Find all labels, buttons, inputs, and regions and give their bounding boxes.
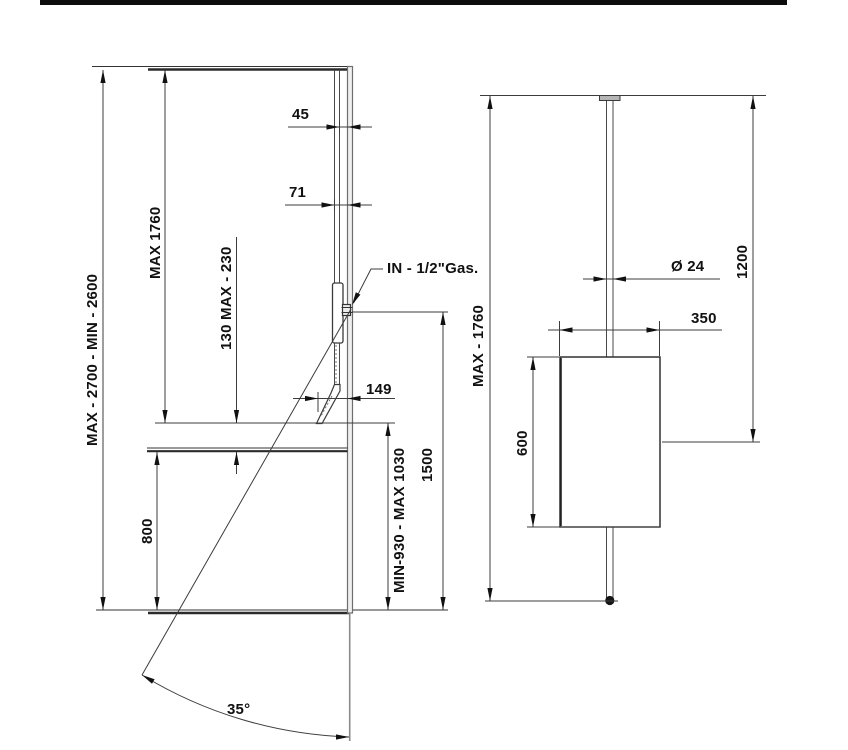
dim-pipe-wall-gap-front: 71 xyxy=(289,184,306,201)
drawing-linework xyxy=(0,0,848,750)
dim-spout-to-shelf: 130 MAX - 230 xyxy=(218,233,236,363)
dim-ceiling-to-handshower: MAX - 1760 xyxy=(470,290,488,402)
dim-shelf-height: 800 xyxy=(139,506,157,556)
dim-body-width: 350 xyxy=(691,310,717,327)
dim-inlet-height: 1500 xyxy=(419,442,437,488)
dim-ceiling-to-spout: MAX 1760 xyxy=(147,195,165,290)
dim-pipe-length: 1200 xyxy=(734,234,752,290)
dim-body-height: 600 xyxy=(514,420,532,466)
left-view-dimensions xyxy=(103,70,448,737)
left-view-structure xyxy=(92,67,448,742)
dim-swivel-angle: 35° xyxy=(227,701,250,718)
dim-pipe-diameter: Ø 24 xyxy=(671,258,704,275)
dim-pipe-wall-gap-rear: 45 xyxy=(292,106,309,123)
label-water-inlet: IN - 1/2"Gas. xyxy=(387,260,478,277)
dim-spout-height: MIN-930 - MAX 1030 xyxy=(391,440,409,600)
technical-drawing-sheet: MAX - 2700 - MIN - 2600 MAX 1760 130 MAX… xyxy=(0,0,848,750)
dim-spout-projection: 149 xyxy=(366,381,392,398)
dim-overall-height: MAX - 2700 - MIN - 2600 xyxy=(84,225,102,495)
right-view-structure xyxy=(560,96,660,606)
